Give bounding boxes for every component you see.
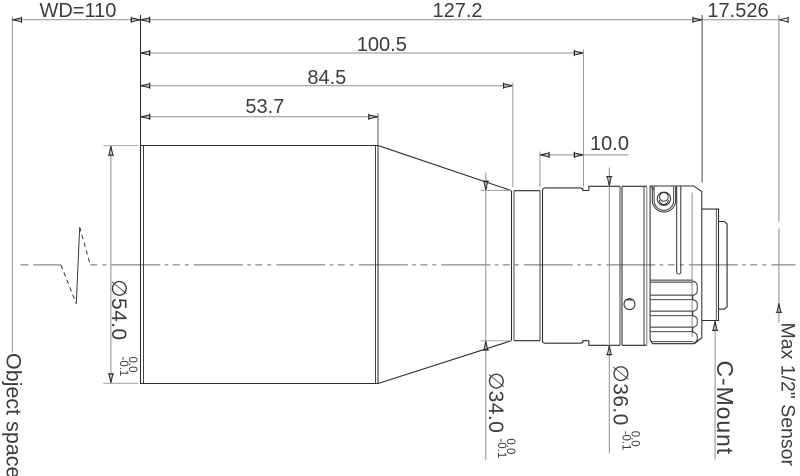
svg-text:17.526: 17.526 [707, 0, 768, 22]
svg-text:53.7: 53.7 [245, 96, 284, 118]
svg-text:127.2: 127.2 [432, 0, 482, 22]
svg-text:∅34.0: ∅34.0 [484, 372, 507, 433]
svg-text:84.5: 84.5 [307, 67, 346, 89]
svg-text:-0.1: -0.1 [495, 438, 507, 458]
svg-text:∅36.0: ∅36.0 [608, 365, 631, 426]
svg-text:100.5: 100.5 [357, 34, 407, 56]
svg-text:-0.1: -0.1 [117, 357, 129, 377]
svg-text:-0.1: -0.1 [619, 431, 631, 451]
svg-text:10.0: 10.0 [590, 133, 629, 155]
svg-text:Max 1/2" Sensor: Max 1/2" Sensor [777, 323, 799, 467]
svg-text:Object space: Object space [1, 353, 25, 476]
svg-text:C-Mount: C-Mount [712, 361, 738, 456]
svg-text:∅54.0: ∅54.0 [107, 279, 130, 340]
svg-text:WD=110: WD=110 [39, 0, 116, 22]
